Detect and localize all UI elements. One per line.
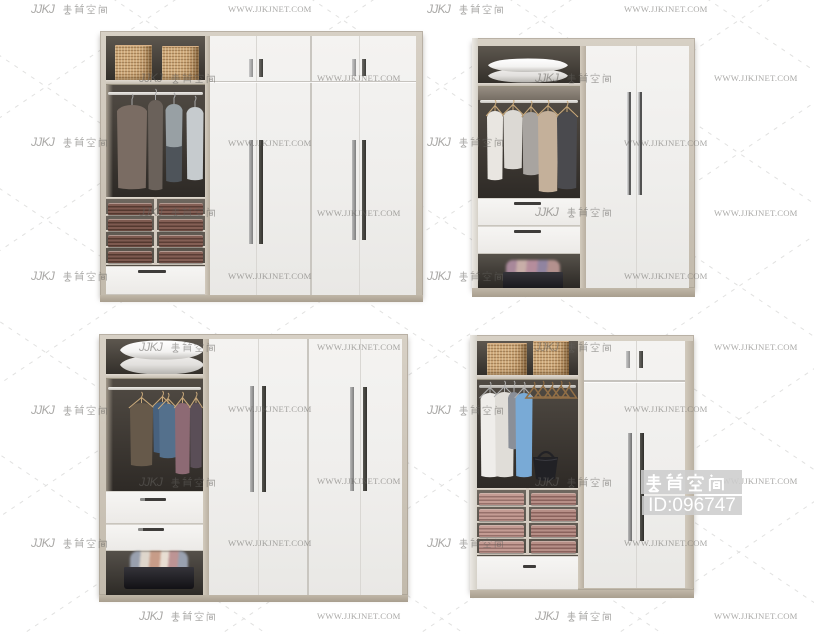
svg-text:JJKJ: JJKJ: [534, 71, 560, 85]
svg-text:WWW.JJKJNET.COM: WWW.JJKJNET.COM: [228, 4, 312, 14]
svg-text:JJKJ: JJKJ: [138, 205, 164, 219]
svg-text:WWW.JJKJNET.COM: WWW.JJKJNET.COM: [228, 271, 312, 281]
svg-text:JJKJ: JJKJ: [426, 403, 452, 417]
svg-text:JJKJ: JJKJ: [426, 536, 452, 550]
svg-text:WWW.JJKJNET.COM: WWW.JJKJNET.COM: [714, 73, 798, 83]
svg-text:WWW.JJKJNET.COM: WWW.JJKJNET.COM: [624, 404, 708, 414]
svg-text:WWW.JJKJNET.COM: WWW.JJKJNET.COM: [317, 342, 401, 352]
svg-text:WWW.JJKJNET.COM: WWW.JJKJNET.COM: [228, 404, 312, 414]
svg-text:WWW.JJKJNET.COM: WWW.JJKJNET.COM: [714, 611, 798, 621]
svg-text:JJKJ: JJKJ: [534, 205, 560, 219]
svg-text:JJKJ: JJKJ: [426, 135, 452, 149]
svg-text:JJKJ: JJKJ: [138, 609, 164, 623]
svg-text:JJKJ: JJKJ: [534, 609, 560, 623]
svg-text:JJKJ: JJKJ: [30, 135, 56, 149]
svg-text:WWW.JJKJNET.COM: WWW.JJKJNET.COM: [317, 73, 401, 83]
svg-text:WWW.JJKJNET.COM: WWW.JJKJNET.COM: [714, 342, 798, 352]
svg-text:JJKJ: JJKJ: [138, 71, 164, 85]
svg-text:JJKJ: JJKJ: [534, 475, 560, 489]
svg-text:JJKJ: JJKJ: [30, 536, 56, 550]
svg-text:JJKJ: JJKJ: [30, 269, 56, 283]
svg-text:JJKJ: JJKJ: [30, 2, 56, 16]
svg-text:JJKJ: JJKJ: [534, 340, 560, 354]
svg-text:JJKJ: JJKJ: [30, 403, 56, 417]
svg-text:JJKJ: JJKJ: [138, 475, 164, 489]
svg-text:WWW.JJKJNET.COM: WWW.JJKJNET.COM: [228, 138, 312, 148]
svg-text:WWW.JJKJNET.COM: WWW.JJKJNET.COM: [624, 538, 708, 548]
svg-text:WWW.JJKJNET.COM: WWW.JJKJNET.COM: [317, 208, 401, 218]
svg-text:WWW.JJKJNET.COM: WWW.JJKJNET.COM: [317, 611, 401, 621]
svg-text:WWW.JJKJNET.COM: WWW.JJKJNET.COM: [624, 4, 708, 14]
svg-text:JJKJ: JJKJ: [426, 2, 452, 16]
svg-text:WWW.JJKJNET.COM: WWW.JJKJNET.COM: [714, 208, 798, 218]
svg-text:WWW.JJKJNET.COM: WWW.JJKJNET.COM: [624, 138, 708, 148]
svg-text:WWW.JJKJNET.COM: WWW.JJKJNET.COM: [624, 271, 708, 281]
svg-text:JJKJ: JJKJ: [138, 340, 164, 354]
svg-text:WWW.JJKJNET.COM: WWW.JJKJNET.COM: [228, 538, 312, 548]
svg-text:WWW.JJKJNET.COM: WWW.JJKJNET.COM: [317, 476, 401, 486]
svg-text:JJKJ: JJKJ: [426, 269, 452, 283]
